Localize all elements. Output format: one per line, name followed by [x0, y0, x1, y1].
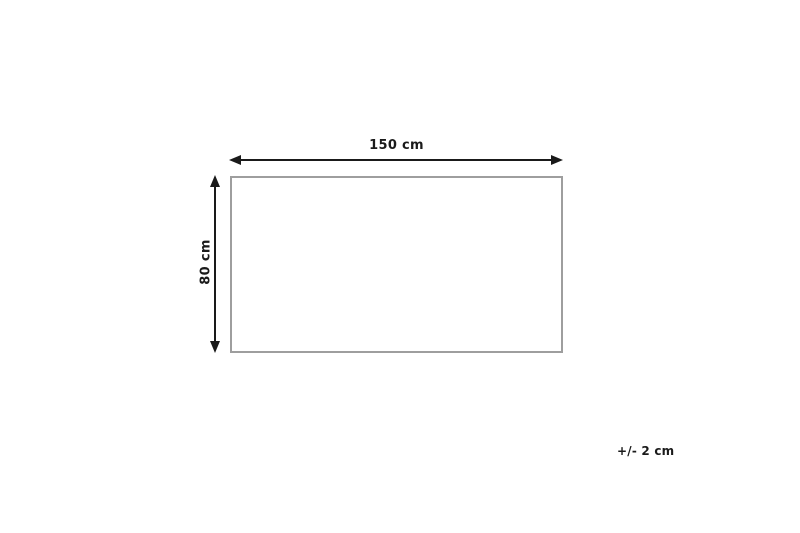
dimension-diagram: 150 cm 80 cm +/- 2 cm: [0, 0, 800, 533]
height-dimension-arrow-icon: [208, 175, 222, 353]
product-outline-rectangle: [230, 176, 563, 353]
width-dimension-label: 150 cm: [230, 138, 563, 153]
tolerance-label: +/- 2 cm: [617, 444, 674, 458]
width-dimension-arrow-icon: [229, 153, 563, 167]
